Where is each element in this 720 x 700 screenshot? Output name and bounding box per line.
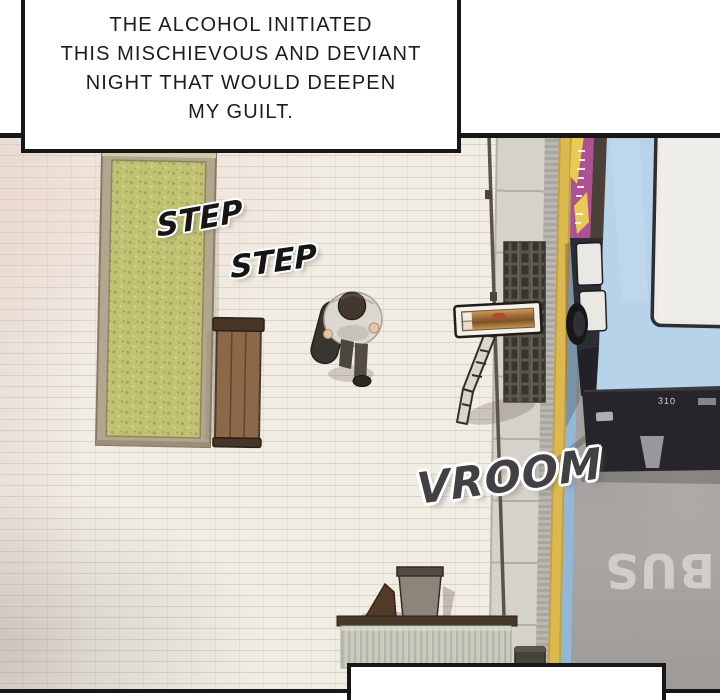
narration-box-top: THE ALCOHOL INITIATED THIS MISCHIEVOUS A… (21, 0, 461, 153)
pedestrian (308, 292, 382, 387)
panel-border-bottom-left (0, 689, 349, 693)
bus-route-number: 310 (658, 396, 676, 407)
pedestrian-hand-left (324, 330, 333, 339)
kiosk-edge-bar (337, 616, 517, 626)
panel-border-bottom-right (663, 689, 720, 693)
kiosk-wedge (365, 584, 396, 618)
bus-stop-sign (454, 302, 542, 337)
rooftop-unit (397, 567, 443, 576)
planter-box (96, 151, 216, 447)
narration-box-bottom (347, 663, 666, 700)
bench (205, 317, 264, 447)
sidewalk-fence (485, 136, 504, 616)
pedestrian-shoe (353, 376, 371, 387)
webtoon-page: BUS (0, 0, 720, 700)
narration-line: THE ALCOHOL INITIATED (25, 11, 457, 40)
bus-door-panel (576, 243, 602, 286)
kiosk-structure (337, 567, 517, 668)
narration-line: NIGHT THAT WOULD DEEPEN (25, 69, 457, 98)
narration-line: MY GUILT. (25, 98, 457, 127)
pedestrian-leg-left (339, 339, 354, 369)
road-marking-bus-text: BUS (604, 542, 715, 597)
shelter-roof (652, 134, 720, 327)
pedestrian-hand-right (369, 323, 379, 333)
narration-line: THIS MISCHIEVOUS AND DEVIANT (25, 40, 457, 69)
street-scene-panel: BUS (0, 134, 720, 692)
scene-objects: 310 (0, 134, 720, 692)
road-marking-bus: BUS (604, 542, 708, 604)
kiosk-roof (341, 626, 511, 668)
